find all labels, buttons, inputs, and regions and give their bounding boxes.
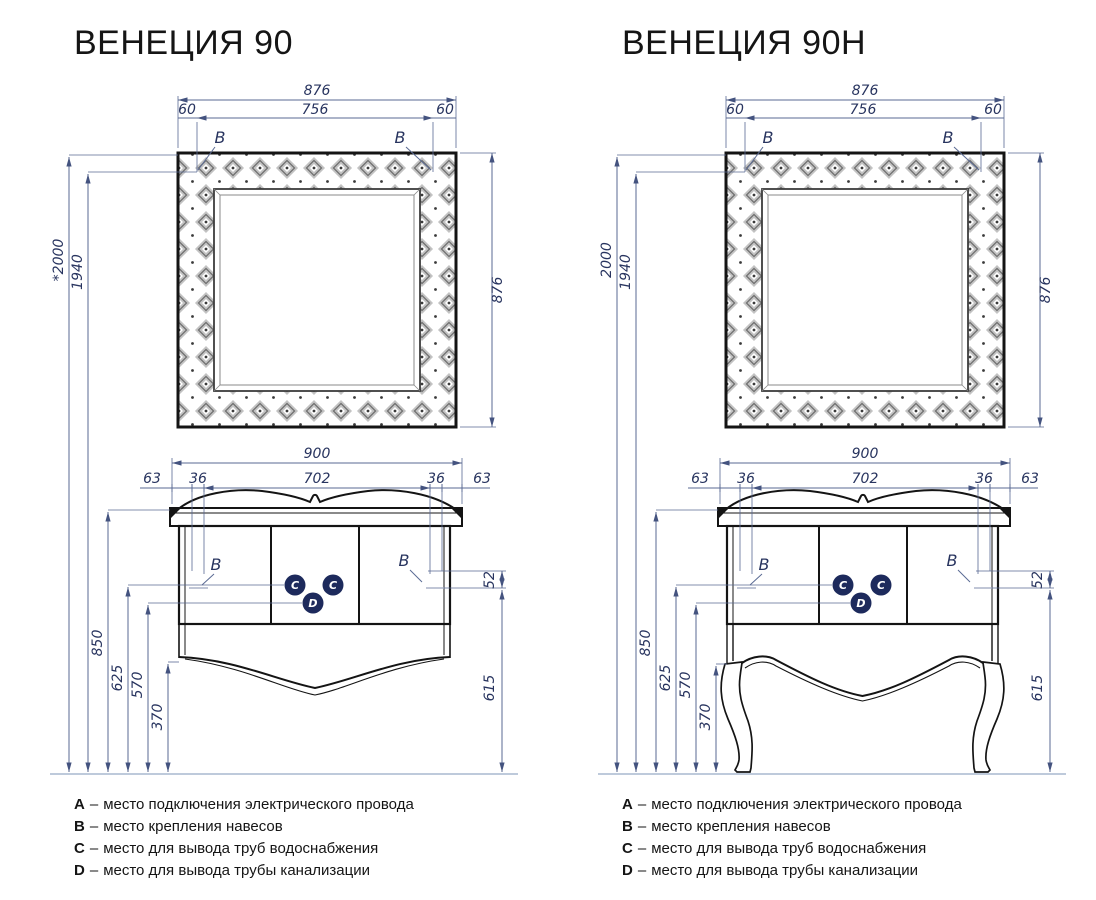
dim-cabinet-width: 900 — [852, 446, 879, 462]
countertop — [170, 508, 462, 526]
dim-door-span: 702 — [852, 471, 879, 487]
legend-key: C — [74, 840, 85, 857]
dim-mirror-width: 876 — [304, 83, 331, 99]
dim-counter-height: 850 — [638, 630, 654, 657]
dim-mirror-trim-left: 60 — [726, 102, 744, 118]
dim-mirror-trim-right: 60 — [436, 102, 454, 118]
dim-mirror-trim-left: 60 — [178, 102, 196, 118]
legend-key: A — [622, 796, 633, 813]
legend-separator: – — [90, 862, 98, 879]
dim-door-span: 702 — [304, 471, 331, 487]
badge-letter-c: C — [329, 579, 337, 592]
apron-curve — [742, 656, 983, 696]
dim-mirror-height: 876 — [490, 277, 506, 304]
mount-label-top-left: B — [763, 128, 774, 147]
skirt-apron — [179, 624, 450, 695]
vanity-dimensions: 900 63 36 702 36 63 — [688, 446, 1039, 574]
dim-total-height: 2000 — [599, 242, 615, 278]
dim-edge-left: 63 — [143, 471, 161, 487]
vanity-dimensions: 900 63 36 702 36 63 — [140, 446, 491, 574]
legend-separator: – — [638, 796, 646, 813]
legend-key: A — [74, 796, 85, 813]
drawing-panel-veneciya-90n: ВЕНЕЦИЯ 90Н — [548, 0, 1096, 900]
dim-bottom-clearance: 370 — [150, 704, 166, 731]
vanity-cabinet: C C D B B — [170, 490, 462, 695]
mount-label-top-right: B — [943, 128, 954, 147]
vanity-cabinet: C C D B B — [718, 490, 1010, 772]
legend-item-d: D–место для вывода трубы канализации — [622, 860, 962, 882]
mirror-glass — [214, 189, 420, 391]
dim-drain-height: 570 — [678, 672, 694, 699]
dim-offset-left: 36 — [737, 471, 755, 487]
mount-label-left: B — [211, 555, 222, 574]
mount-label-right: B — [399, 551, 410, 570]
drawing-title: ВЕНЕЦИЯ 90 — [74, 24, 293, 63]
drain-badge: D — [303, 593, 324, 614]
legend-text: место подключения электрического провода — [103, 796, 414, 813]
mirror-frame — [178, 153, 456, 427]
dim-counter-height: 850 — [90, 630, 106, 657]
legend-separator: – — [638, 818, 646, 835]
dim-total-height: *2000 — [51, 239, 67, 282]
blueprint-page: ВЕНЕЦИЯ 90 — [0, 0, 1096, 900]
legend-separator: – — [638, 862, 646, 879]
dim-side-clearance: 615 — [1030, 675, 1046, 702]
badge-letter-d: D — [856, 597, 865, 610]
legend-text: место подключения электрического провода — [651, 796, 962, 813]
legend-separator: – — [90, 840, 98, 857]
legend-key: D — [74, 862, 85, 879]
legend-key: C — [622, 840, 633, 857]
dim-mount-height: 1940 — [70, 254, 86, 290]
mirror-glass — [762, 189, 968, 391]
badge-letter-c: C — [877, 579, 885, 592]
legend-item-c: C–место для вывода труб водоснабжения — [622, 838, 962, 860]
dim-mirror-width: 876 — [852, 83, 879, 99]
legend-item-b: B–место крепления навесов — [74, 816, 414, 838]
legend-item-d: D–место для вывода трубы канализации — [74, 860, 414, 882]
legend-text: место для вывода трубы канализации — [651, 862, 918, 879]
drawing-title: ВЕНЕЦИЯ 90Н — [622, 24, 866, 63]
dim-edge-right: 63 — [1021, 471, 1039, 487]
legend-item-b: B–место крепления навесов — [622, 816, 962, 838]
dim-mirror-inner-width: 756 — [850, 102, 877, 118]
leg-right — [973, 662, 1004, 772]
legend-text: место для вывода труб водоснабжения — [103, 840, 378, 857]
legend-text: место для вывода труб водоснабжения — [651, 840, 926, 857]
dim-offset-left: 36 — [189, 471, 207, 487]
badge-letter-c: C — [839, 579, 847, 592]
dim-edge-left: 63 — [691, 471, 709, 487]
leg-left — [721, 662, 752, 772]
supply-badge-left: C — [285, 575, 306, 596]
dim-offset-right: 36 — [427, 471, 445, 487]
supply-badge-right: C — [323, 575, 344, 596]
legend-text: место крепления навесов — [103, 818, 283, 835]
side-dimensions: 52 615 — [428, 571, 506, 772]
supply-badge-left: C — [833, 575, 854, 596]
supply-badge-right: C — [871, 575, 892, 596]
cabriole-legs — [721, 624, 1004, 772]
dim-side-clearance: 615 — [482, 675, 498, 702]
drain-badge: D — [851, 593, 872, 614]
legend-key: B — [74, 818, 85, 835]
mirror-frame — [726, 153, 1004, 427]
dim-top-offset: 52 — [1030, 571, 1046, 589]
legend-item-a: A–место подключения электрического прово… — [74, 794, 414, 816]
mount-label-left: B — [759, 555, 770, 574]
legend-key: D — [622, 862, 633, 879]
badge-letter-d: D — [308, 597, 317, 610]
countertop — [718, 508, 1010, 526]
dim-mirror-trim-right: 60 — [984, 102, 1002, 118]
dim-mirror-height: 876 — [1038, 277, 1054, 304]
dim-drain-height: 570 — [130, 672, 146, 699]
dim-cabinet-width: 900 — [304, 446, 331, 462]
legend-text: место для вывода трубы канализации — [103, 862, 370, 879]
badge-letter-c: C — [291, 579, 299, 592]
legend-item-c: C–место для вывода труб водоснабжения — [74, 838, 414, 860]
legend-separator: – — [90, 796, 98, 813]
mount-label-top-right: B — [395, 128, 406, 147]
dim-supply-height: 625 — [110, 665, 126, 692]
dim-top-offset: 52 — [482, 571, 498, 589]
legend-key: B — [622, 818, 633, 835]
mount-label-top-left: B — [215, 128, 226, 147]
dim-edge-right: 63 — [473, 471, 491, 487]
legend-item-a: A–место подключения электрического прово… — [622, 794, 962, 816]
dim-bottom-clearance: 370 — [698, 704, 714, 731]
drawing-panel-veneciya-90: ВЕНЕЦИЯ 90 — [0, 0, 548, 900]
legend-separator: – — [638, 840, 646, 857]
mount-label-right: B — [947, 551, 958, 570]
dim-offset-right: 36 — [975, 471, 993, 487]
legend-separator: – — [90, 818, 98, 835]
legend-text: место крепления навесов — [651, 818, 831, 835]
legend: A–место подключения электрического прово… — [622, 794, 962, 882]
technical-drawing-veneciya-90n: C C D B B 876 — [592, 60, 1092, 790]
dim-supply-height: 625 — [658, 665, 674, 692]
technical-drawing-veneciya-90: C C D B B 876 — [44, 60, 544, 790]
dim-mirror-inner-width: 756 — [302, 102, 329, 118]
dim-mount-height: 1940 — [618, 254, 634, 290]
legend: A–место подключения электрического прово… — [74, 794, 414, 882]
